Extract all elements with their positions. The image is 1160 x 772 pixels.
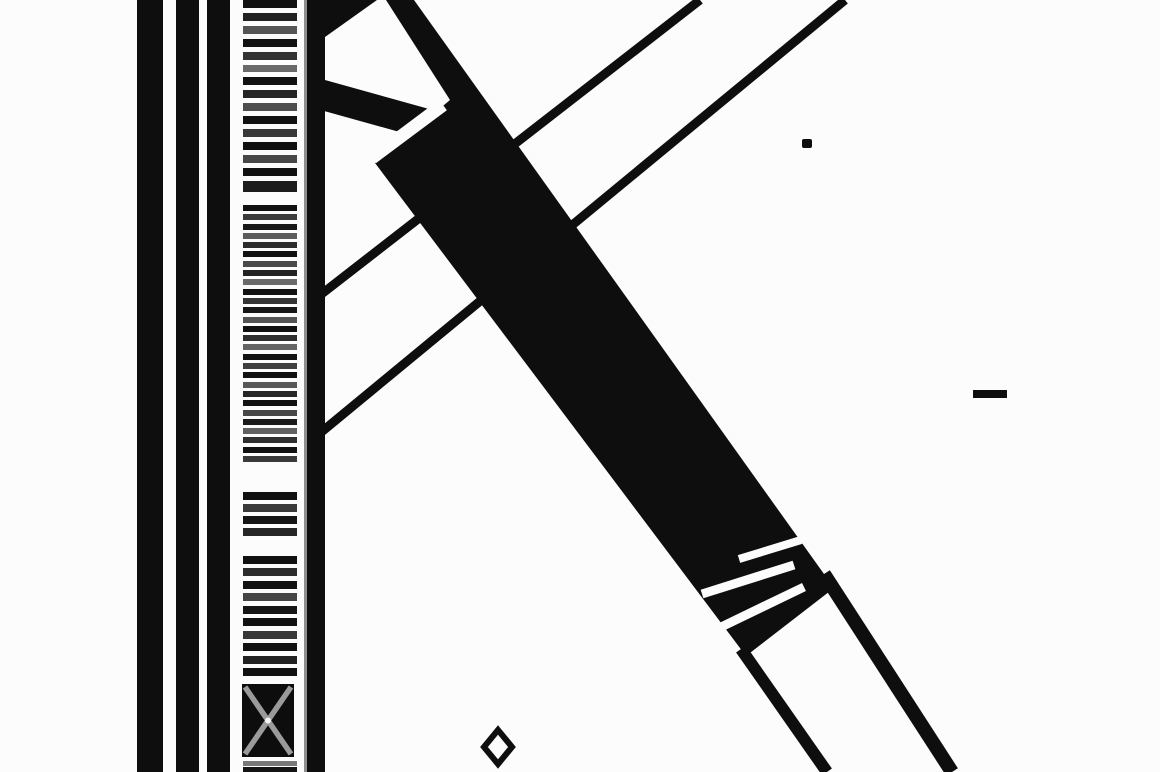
barcode-stripe [243,205,297,211]
barcode-stripe [243,116,297,124]
barcode-stripe [243,77,297,85]
vertical-bar [207,0,230,772]
barcode-stripe [243,606,297,614]
barcode-stripe [243,214,297,220]
barcode-stripe [243,504,297,512]
barcode-stripe [243,447,297,453]
barcode-stripe [243,382,297,388]
barcode-stripe [243,13,297,21]
barcode-stripe [243,581,297,589]
barcode-stripe [243,39,297,47]
barcode-stripe [243,270,297,276]
barcode-stripe [243,767,297,772]
glitch-art-canvas [0,0,1160,772]
barcode-stripe [243,568,297,576]
barcode-stripe [243,279,297,285]
barcode-stripe [243,656,297,664]
barcode-stripe [243,251,297,257]
barcode-stripe [243,242,297,248]
barcode-stripe [243,90,297,98]
barcode-stripe [243,363,297,369]
barcode-stripe [243,168,297,176]
barcode-stripe [243,372,297,378]
barcode-stripe [243,354,297,360]
vertical-bar [176,0,199,772]
barcode-stripe [243,556,297,564]
barcode-stripe [243,317,297,323]
barcode-stripe [243,289,297,295]
vertical-bar [307,0,325,772]
barcode-stripe [243,326,297,332]
barcode-stripe [243,344,297,350]
barcode-stripe [243,761,297,766]
barcode-stripe [243,410,297,416]
gray-rule [304,0,307,772]
barcode-stripe [243,142,297,150]
barcode-stripe [243,643,297,651]
crossed-box-center-dot [265,718,271,724]
barcode-stripe [243,224,297,230]
dash-mark [973,390,1007,398]
barcode-stripe [243,456,297,462]
barcode-stripe [243,335,297,341]
barcode-stripe [243,631,297,639]
barcode-stripe [243,593,297,601]
barcode-stripe [243,298,297,304]
barcode-stripe [243,516,297,524]
barcode-stripe [243,437,297,443]
barcode-stripe [243,419,297,425]
barcode-stripe [243,391,297,397]
barcode-stripe [243,155,297,163]
barcode-stripe [243,181,297,192]
barcode-stripe [243,261,297,267]
barcode-stripe [243,618,297,626]
barcode-stripe [243,492,297,500]
barcode-stripe [243,52,297,60]
barcode-stripe [243,129,297,137]
barcode-stripe [243,668,297,676]
barcode-stripe [243,400,297,406]
abstract-glitch-image [0,0,1160,772]
barcode-stripe [243,233,297,239]
barcode-stripe [243,307,297,313]
barcode-stripe [243,26,297,34]
vertical-bar [137,0,163,772]
dot-mark [802,139,812,148]
barcode-stripe [243,0,297,8]
barcode-stripe [243,65,297,72]
barcode-stripe [243,528,297,536]
barcode-stripe [243,428,297,434]
barcode-stripe [243,103,297,111]
